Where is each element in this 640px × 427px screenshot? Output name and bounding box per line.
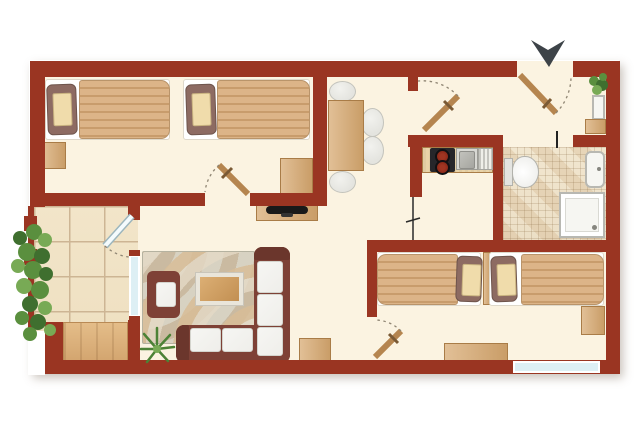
entrance-door-swing-arc <box>556 78 571 113</box>
bedroom2-door-leaf <box>375 331 401 357</box>
bedroom1-door-leaf <box>219 165 248 194</box>
balcony-plant <box>11 224 56 341</box>
hall-plant <box>589 73 608 95</box>
balcony-door-swing-arc <box>105 246 129 257</box>
floor-plan <box>0 0 640 427</box>
bedroom1-door-swing-arc <box>205 165 219 192</box>
bedroom2-door-swing-arc <box>376 320 401 331</box>
entrance-door-leaf <box>520 75 556 113</box>
plan-overlay <box>0 0 640 427</box>
balcony-door-leaf <box>105 216 132 246</box>
entrance-arrow-icon <box>531 40 565 67</box>
hall-door-leaf <box>424 96 458 130</box>
living-room-plant <box>141 328 174 362</box>
hall-door-swing-arc <box>418 81 458 96</box>
